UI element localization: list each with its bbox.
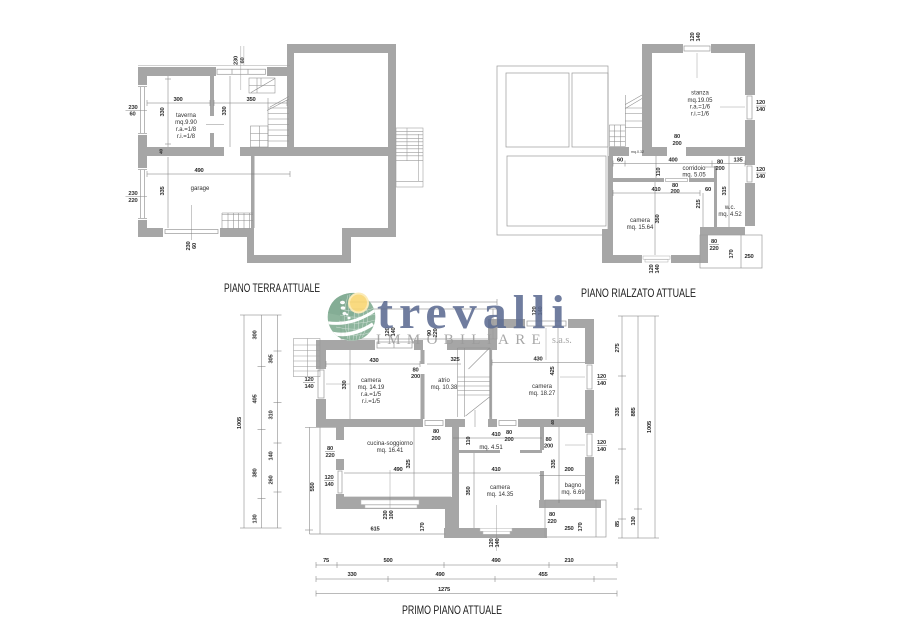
svg-text:250: 250 xyxy=(564,526,573,532)
svg-text:140: 140 xyxy=(696,32,702,41)
svg-text:140: 140 xyxy=(269,451,275,460)
svg-text:140: 140 xyxy=(756,174,765,180)
svg-text:220: 220 xyxy=(547,519,556,525)
svg-text:220: 220 xyxy=(325,453,334,459)
svg-text:bagno: bagno xyxy=(565,483,582,489)
svg-text:PIANO RIALZATO ATTUALE: PIANO RIALZATO ATTUALE xyxy=(581,288,696,300)
svg-text:200: 200 xyxy=(504,437,513,443)
svg-text:mq. 5.05: mq. 5.05 xyxy=(682,173,706,179)
svg-text:120: 120 xyxy=(597,374,606,380)
svg-text:140: 140 xyxy=(597,381,606,387)
svg-text:200: 200 xyxy=(544,444,553,450)
svg-text:s.a.s.: s.a.s. xyxy=(552,335,572,346)
svg-text:80: 80 xyxy=(549,512,555,518)
svg-text:300: 300 xyxy=(173,97,182,103)
svg-text:60: 60 xyxy=(705,187,711,193)
svg-text:120: 120 xyxy=(597,440,606,446)
svg-text:315: 315 xyxy=(722,185,728,195)
svg-text:335: 335 xyxy=(160,185,166,195)
svg-text:camera: camera xyxy=(630,218,651,224)
svg-text:60: 60 xyxy=(617,158,623,164)
svg-text:110: 110 xyxy=(656,168,662,177)
svg-text:mq. 6.69: mq. 6.69 xyxy=(561,490,585,496)
svg-text:490: 490 xyxy=(491,558,500,564)
svg-text:80: 80 xyxy=(433,429,439,435)
svg-text:mq. 14.19: mq. 14.19 xyxy=(358,385,385,391)
svg-text:camera: camera xyxy=(532,384,553,390)
svg-text:215: 215 xyxy=(696,198,702,208)
svg-text:120: 120 xyxy=(756,100,765,106)
svg-text:490: 490 xyxy=(435,572,444,578)
svg-text:80: 80 xyxy=(674,134,680,140)
svg-text:130: 130 xyxy=(253,514,259,523)
svg-text:85: 85 xyxy=(615,520,621,527)
svg-text:1005: 1005 xyxy=(237,416,243,429)
svg-text:mq. 10.38: mq. 10.38 xyxy=(431,385,458,391)
svg-text:380: 380 xyxy=(253,468,259,477)
svg-text:335: 335 xyxy=(615,406,621,416)
svg-text:170: 170 xyxy=(420,522,426,531)
svg-text:220: 220 xyxy=(128,198,137,204)
svg-text:PRIMO PIANO ATTUALE: PRIMO PIANO ATTUALE xyxy=(402,605,502,617)
svg-text:w.c.: w.c. xyxy=(724,205,736,211)
svg-text:r.i.=1/5: r.i.=1/5 xyxy=(362,399,381,405)
svg-text:mq.0.32: mq.0.32 xyxy=(631,150,644,154)
svg-text:140: 140 xyxy=(495,538,501,547)
svg-text:305: 305 xyxy=(269,353,275,363)
svg-text:80: 80 xyxy=(711,239,717,245)
svg-text:330: 330 xyxy=(342,380,348,389)
svg-text:210: 210 xyxy=(564,558,573,564)
svg-text:cucina-soggiorno: cucina-soggiorno xyxy=(367,441,413,447)
svg-text:400: 400 xyxy=(668,158,677,164)
svg-text:r.a.=1/6: r.a.=1/6 xyxy=(690,105,711,111)
svg-text:330: 330 xyxy=(222,106,228,115)
svg-text:140: 140 xyxy=(324,482,333,488)
svg-text:135: 135 xyxy=(733,158,743,164)
svg-text:1275: 1275 xyxy=(438,587,451,593)
svg-text:r.i.=1/6: r.i.=1/6 xyxy=(691,111,710,117)
svg-text:490: 490 xyxy=(393,467,402,473)
svg-text:garage: garage xyxy=(191,186,210,192)
svg-text:550: 550 xyxy=(310,482,316,491)
svg-text:mq. 16.41: mq. 16.41 xyxy=(377,448,404,454)
svg-text:r.a.=1/8: r.a.=1/8 xyxy=(176,127,197,133)
svg-text:350: 350 xyxy=(466,486,472,495)
svg-text:80: 80 xyxy=(717,160,723,166)
svg-text:PIANO TERRA ATTUALE: PIANO TERRA ATTUALE xyxy=(224,283,320,295)
svg-text:75: 75 xyxy=(323,558,330,564)
svg-text:60: 60 xyxy=(129,112,135,118)
svg-text:mq.19.05: mq.19.05 xyxy=(687,98,713,104)
svg-text:430: 430 xyxy=(369,358,378,364)
svg-text:mq. 4.51: mq. 4.51 xyxy=(479,445,503,451)
svg-text:130: 130 xyxy=(631,516,637,525)
svg-text:140: 140 xyxy=(756,107,765,113)
svg-text:335: 335 xyxy=(551,458,557,468)
svg-text:mq. 14.35: mq. 14.35 xyxy=(487,492,514,498)
svg-text:885: 885 xyxy=(631,406,637,416)
svg-text:IMMOBILIARE: IMMOBILIARE xyxy=(376,332,547,348)
svg-text:330: 330 xyxy=(347,572,356,578)
svg-text:405: 405 xyxy=(253,393,259,403)
svg-text:170: 170 xyxy=(729,249,735,258)
svg-text:310: 310 xyxy=(269,410,275,419)
svg-text:425: 425 xyxy=(550,365,556,375)
svg-text:220: 220 xyxy=(709,246,718,252)
svg-text:200: 200 xyxy=(672,141,681,147)
svg-text:200: 200 xyxy=(411,374,420,380)
svg-text:corridoio: corridoio xyxy=(682,166,706,172)
svg-text:80: 80 xyxy=(327,446,333,452)
svg-text:camera: camera xyxy=(361,378,382,384)
svg-text:140: 140 xyxy=(304,384,313,390)
svg-text:200: 200 xyxy=(564,467,573,473)
svg-text:40: 40 xyxy=(159,149,165,154)
svg-text:490: 490 xyxy=(194,168,203,174)
svg-text:80: 80 xyxy=(412,368,418,374)
svg-text:40: 40 xyxy=(550,420,555,425)
svg-text:camera: camera xyxy=(490,485,511,491)
svg-text:275: 275 xyxy=(615,342,621,352)
svg-text:455: 455 xyxy=(538,572,548,578)
svg-text:500: 500 xyxy=(383,558,392,564)
svg-text:350: 350 xyxy=(655,214,661,223)
svg-text:60: 60 xyxy=(192,243,198,249)
svg-text:atrio: atrio xyxy=(438,378,450,384)
svg-text:615: 615 xyxy=(370,527,380,533)
svg-text:120: 120 xyxy=(324,475,333,481)
svg-text:mq.9.90: mq.9.90 xyxy=(175,120,197,126)
svg-text:r.a.=1/5: r.a.=1/5 xyxy=(361,392,382,398)
svg-text:410: 410 xyxy=(491,432,500,438)
svg-text:250: 250 xyxy=(744,254,753,260)
svg-text:200: 200 xyxy=(715,166,724,172)
svg-text:140: 140 xyxy=(655,264,661,273)
svg-text:200: 200 xyxy=(431,436,440,442)
svg-text:325: 325 xyxy=(450,357,460,363)
svg-text:200: 200 xyxy=(670,189,679,195)
svg-text:mq. 18.27: mq. 18.27 xyxy=(529,391,556,397)
svg-text:110: 110 xyxy=(466,437,472,446)
svg-text:mq. 4.52: mq. 4.52 xyxy=(718,212,742,218)
svg-text:430: 430 xyxy=(533,357,542,363)
svg-text:260: 260 xyxy=(269,475,275,484)
svg-text:mq. 15.64: mq. 15.64 xyxy=(627,225,654,231)
svg-text:80: 80 xyxy=(545,437,551,443)
svg-text:170: 170 xyxy=(578,522,584,531)
svg-text:100: 100 xyxy=(389,510,395,519)
svg-text:320: 320 xyxy=(615,475,621,484)
svg-text:120: 120 xyxy=(304,377,313,383)
svg-text:325: 325 xyxy=(406,458,412,468)
svg-text:140: 140 xyxy=(597,447,606,453)
svg-text:350: 350 xyxy=(246,97,255,103)
svg-text:stanza: stanza xyxy=(691,91,709,97)
svg-text:r.i.=1/8: r.i.=1/8 xyxy=(177,134,196,140)
svg-text:taverna: taverna xyxy=(176,113,197,119)
svg-text:80: 80 xyxy=(506,430,512,436)
svg-text:1005: 1005 xyxy=(647,420,653,433)
svg-text:230: 230 xyxy=(234,56,240,65)
svg-text:410: 410 xyxy=(491,467,500,473)
svg-text:410: 410 xyxy=(651,187,660,193)
svg-text:300: 300 xyxy=(253,330,259,339)
svg-text:120: 120 xyxy=(756,167,765,173)
svg-text:330: 330 xyxy=(160,107,166,116)
